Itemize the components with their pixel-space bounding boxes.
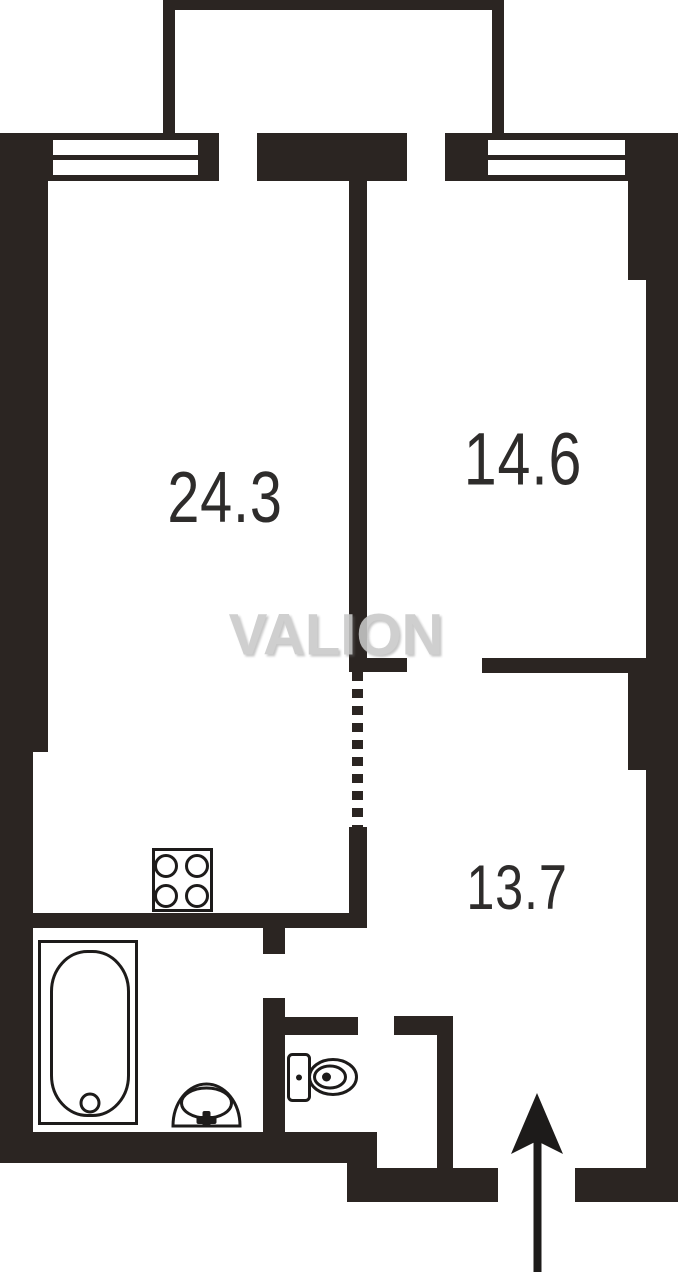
entrance-arrow-icon	[511, 1093, 563, 1272]
room-area-label-living: 24.3	[167, 457, 282, 539]
floor-plan: 24.3 14.6 13.7 VALION	[0, 0, 678, 1272]
watermark-text: VALION	[229, 602, 444, 669]
room-area-label-bedroom: 14.6	[464, 417, 582, 502]
room-area-label-hall: 13.7	[466, 852, 567, 924]
sink-icon	[173, 1084, 240, 1127]
bathtub-icon	[40, 942, 137, 1124]
toilet-icon	[289, 1055, 357, 1101]
stove-icon	[154, 850, 212, 911]
